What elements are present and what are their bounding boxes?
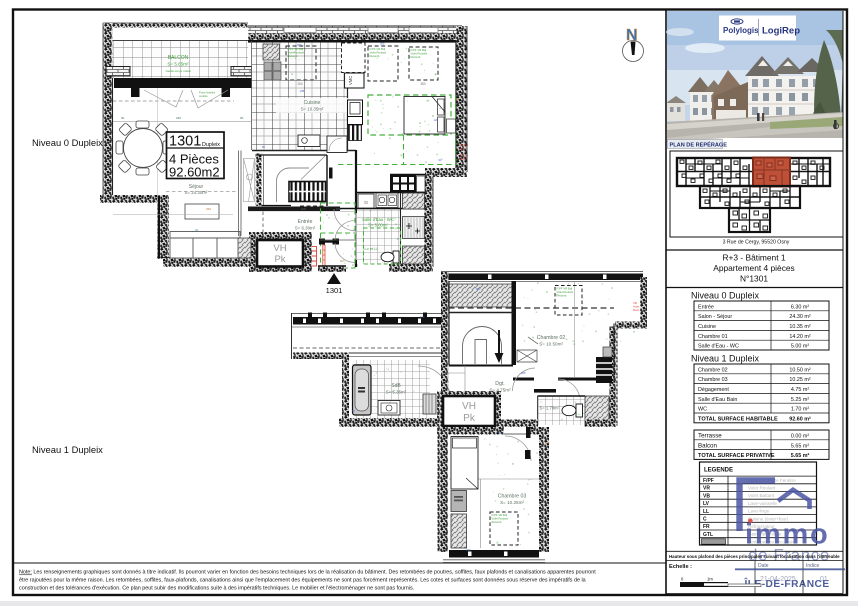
svg-text:Chambre 02: Chambre 02 (698, 367, 728, 373)
svg-text:1301: 1301 (169, 134, 201, 150)
svg-text:Retomb.: Retomb. (557, 293, 568, 297)
svg-text:Roul.: Roul. (633, 308, 640, 312)
svg-text:Chambre 03: Chambre 03 (498, 494, 527, 500)
svg-text:120: 120 (545, 441, 550, 445)
svg-text:Niveau 1 Dupleix: Niveau 1 Dupleix (32, 444, 103, 455)
svg-text:5.25 m²: 5.25 m² (791, 397, 809, 403)
svg-text:260: 260 (206, 207, 211, 211)
svg-text:300: 300 (466, 548, 471, 552)
svg-text:14.20 m²: 14.20 m² (789, 334, 810, 340)
svg-text:260: 260 (297, 82, 303, 86)
svg-text:90: 90 (195, 228, 199, 232)
svg-text:Niveau 0 Dupleix: Niveau 0 Dupleix (32, 137, 103, 148)
svg-text:Volet Roulant: Volet Roulant (748, 486, 776, 491)
svg-text:N°1301: N°1301 (740, 274, 768, 284)
svg-text:Salon - Séjour: Salon - Séjour (698, 314, 732, 320)
svg-text:Entrée: Entrée (698, 304, 714, 310)
svg-text:Entrée: Entrée (298, 219, 313, 225)
svg-text:01: 01 (820, 576, 828, 583)
svg-text:S= 1.70m²: S= 1.70m² (540, 406, 560, 411)
svg-text:LL: LL (703, 509, 709, 515)
svg-text:10.50 m²: 10.50 m² (789, 367, 810, 373)
svg-text:Pk: Pk (274, 254, 285, 265)
svg-text:4.75 m²: 4.75 m² (791, 387, 809, 393)
svg-text:10.35 m²: 10.35 m² (789, 324, 810, 330)
svg-text:N: N (626, 27, 638, 44)
svg-text:Dupleix: Dupleix (202, 142, 220, 148)
svg-text:380: 380 (420, 82, 426, 86)
svg-text:260: 260 (380, 42, 385, 46)
svg-text:3 Rue de Cergy, 95520 Osny: 3 Rue de Cergy, 95520 Osny (723, 240, 790, 246)
svg-text:Lave-linge: Lave-linge (748, 509, 770, 514)
svg-text:24.30 m²: 24.30 m² (789, 314, 810, 320)
svg-text:Chambre 01: Chambre 01 (698, 334, 728, 340)
svg-text:VH: VH (273, 243, 286, 254)
svg-text:Roul.: Roul. (460, 157, 467, 161)
svg-text:5.00 m²: 5.00 m² (791, 344, 809, 350)
svg-text:LogiRep: LogiRep (762, 26, 800, 37)
svg-text:Indice: Indice (806, 563, 820, 569)
svg-text:1.70 m²: 1.70 m² (791, 407, 809, 413)
svg-text:WC: WC (698, 407, 707, 413)
svg-text:VH: VH (462, 401, 476, 412)
svg-text:LEGENDE: LEGENDE (704, 468, 733, 474)
svg-text:10.25 m²: 10.25 m² (789, 377, 810, 383)
svg-text:90: 90 (121, 116, 125, 120)
svg-text:construction et des tolérances: construction et des tolérances d'exécuti… (19, 586, 414, 592)
svg-text:Chambre 03: Chambre 03 (698, 377, 728, 383)
svg-text:360: 360 (476, 287, 481, 291)
svg-text:Appartement 4 pièces: Appartement 4 pièces (713, 263, 794, 273)
svg-text:Dgt.: Dgt. (495, 381, 505, 387)
svg-text:Salle d'Eau Bain: Salle d'Eau Bain (698, 397, 737, 403)
svg-text:Cuisine: Cuisine (698, 324, 716, 330)
svg-text:92.60m2: 92.60m2 (169, 165, 220, 180)
svg-text:S= 5.00m²: S= 5.00m² (368, 223, 388, 228)
svg-text:PLAN DE REPÉRAGE: PLAN DE REPÉRAGE (670, 141, 728, 149)
svg-text:Balcon: Balcon (698, 442, 717, 449)
svg-text:S= 5.35m²: S= 5.35m² (386, 390, 407, 395)
svg-text:R+3 - Bâtiment 1: R+3 - Bâtiment 1 (722, 253, 785, 263)
svg-text:170: 170 (420, 315, 425, 319)
svg-text:Chambre 02: Chambre 02 (537, 335, 566, 341)
svg-text:Salle d'Eau - WC: Salle d'Eau - WC (698, 344, 739, 350)
svg-text:S= 10.25m²: S= 10.25m² (500, 500, 524, 505)
svg-text:92.60 m²: 92.60 m² (789, 416, 811, 422)
svg-text:260: 260 (176, 116, 181, 120)
svg-text:TOTAL SURFACE HABITABLE: TOTAL SURFACE HABITABLE (698, 416, 778, 422)
svg-text:Roul.: Roul. (460, 147, 467, 151)
svg-text:298: 298 (300, 89, 305, 93)
svg-text:SdB: SdB (391, 383, 401, 389)
svg-text:Retomb.: Retomb. (370, 54, 381, 58)
svg-text:S= 10.35m²: S= 10.35m² (301, 107, 324, 112)
svg-text:Garde-corps métal: Garde-corps métal (166, 69, 191, 73)
svg-text:F/PF: F/PF (703, 478, 714, 484)
svg-text:Niveau 1 Dupleix: Niveau 1 Dupleix (691, 354, 760, 364)
svg-text:TOTAL SURFACE PRIVATIVE: TOTAL SURFACE PRIVATIVE (698, 453, 775, 459)
svg-text:FR: FR (703, 524, 710, 530)
svg-text:Niveau 0 Dupleix: Niveau 0 Dupleix (691, 291, 760, 301)
svg-text:couliss.: couliss. (199, 94, 209, 98)
svg-text:VR: VR (703, 486, 710, 492)
svg-text:5.65 m²: 5.65 m² (791, 443, 809, 449)
svg-text:VMC: VMC (348, 76, 353, 85)
svg-text:Date: Date (758, 563, 769, 569)
svg-text:Note: Les renseignements graph: Note: Les renseignements graphiques sont… (19, 570, 596, 576)
svg-text:120: 120 (434, 118, 439, 122)
svg-text:1301: 1301 (326, 286, 343, 295)
svg-text:Lv et Ll: Lv et Ll (365, 246, 378, 251)
svg-text:1m: 1m (707, 577, 713, 582)
svg-text:Pk: Pk (463, 413, 476, 424)
svg-text:Volet Battant: Volet Battant (748, 493, 775, 498)
svg-text:21-04-2025: 21-04-2025 (760, 576, 796, 583)
svg-text:Cuisine: Cuisine (304, 100, 321, 106)
svg-text:5.65 m²: 5.65 m² (791, 453, 810, 459)
svg-text:Hauteur sous plafond des pièce: Hauteur sous plafond des pièces principa… (669, 554, 840, 559)
svg-text:Salle d'Eau - WC: Salle d'Eau - WC (362, 217, 394, 222)
svg-text:C: C (703, 517, 707, 523)
svg-text:Retomb.: Retomb. (411, 55, 422, 59)
svg-text:380: 380 (297, 43, 302, 47)
svg-text:GTL: GTL (703, 532, 713, 538)
svg-text:BALCON: BALCON (168, 55, 189, 61)
svg-text:0.00 m²: 0.00 m² (791, 434, 809, 440)
svg-text:Retomb.: Retomb. (492, 520, 503, 524)
svg-text:100: 100 (301, 207, 306, 211)
svg-text:6.30 m²: 6.30 m² (791, 304, 809, 310)
svg-text:S= 6.30m²: S= 6.30m² (295, 226, 316, 231)
svg-text:VB: VB (703, 493, 710, 499)
svg-text:S= 24.30m²: S= 24.30m² (185, 190, 208, 195)
svg-text:Retomb.: Retomb. (288, 54, 299, 58)
svg-text:S= 5.65m²: S= 5.65m² (167, 62, 189, 67)
svg-text:S= 10.50m²: S= 10.50m² (539, 342, 563, 347)
svg-text:être rajoutées pour la même ra: être rajoutées pour la même raison. Les … (19, 578, 586, 584)
svg-text:90: 90 (240, 116, 244, 120)
svg-text:Polylogis: Polylogis (723, 26, 759, 35)
svg-text:Terrasse: Terrasse (698, 433, 722, 440)
svg-text:380: 380 (521, 371, 526, 375)
svg-text:Lave-vaisselle: Lave-vaisselle (748, 501, 778, 506)
svg-text:LV: LV (703, 501, 710, 507)
svg-text:VR: VR (455, 97, 459, 101)
svg-text:Echelle :: Echelle : (669, 564, 692, 570)
svg-text:Dégagement: Dégagement (698, 387, 729, 393)
